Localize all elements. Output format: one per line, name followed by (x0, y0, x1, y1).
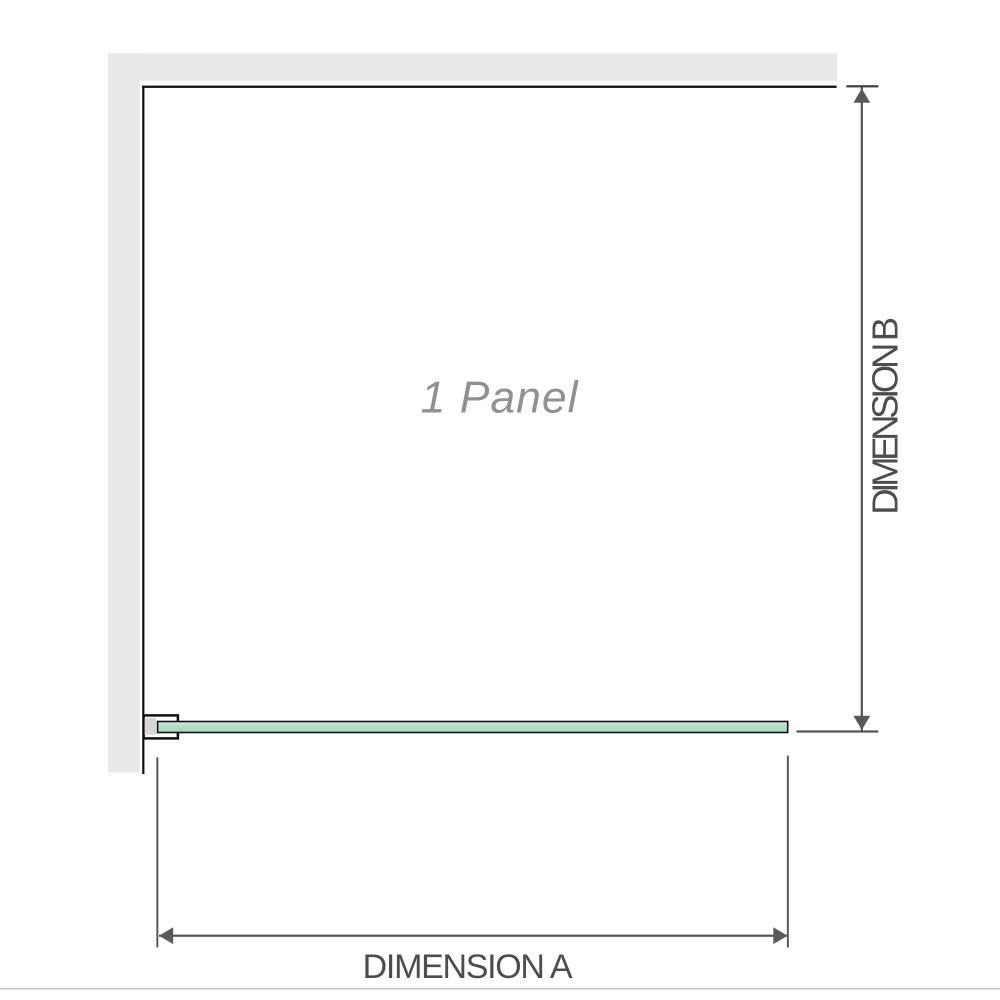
svg-text:DIMENSION B: DIMENSION B (865, 318, 906, 514)
svg-text:1 Panel: 1 Panel (421, 374, 579, 423)
svg-text:DIMENSION A: DIMENSION A (363, 948, 573, 986)
